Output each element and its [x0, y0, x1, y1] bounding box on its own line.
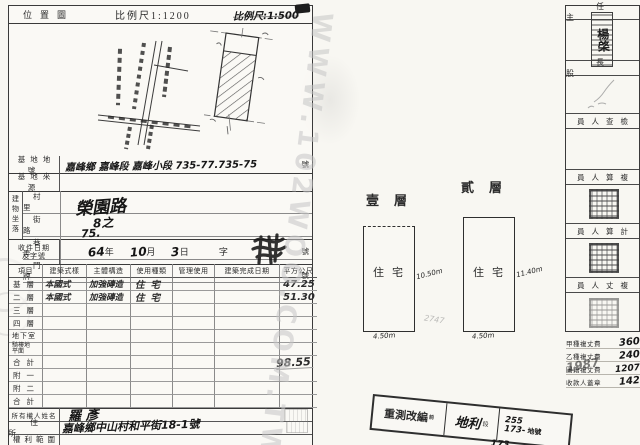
street-label: 街路 [23, 214, 61, 236]
cell [173, 356, 215, 369]
row-label: 騎樓地平面 [9, 343, 43, 356]
cell [215, 304, 280, 317]
cell [87, 356, 131, 369]
floors-table: 項目 建築式樣 主體構造 使用種類 管理使用 建築完成日期 平方公尺 基層 本國… [9, 264, 312, 409]
cell [215, 369, 280, 382]
resurvey-section-unit: 段 [482, 418, 489, 428]
cell [131, 343, 173, 356]
cell [173, 317, 215, 330]
fee-value: 240 [619, 349, 640, 362]
parcel-number-unit: 地號 [527, 427, 542, 436]
intake-year: 64 [88, 244, 106, 259]
resurvey-number-below: 173 [490, 439, 510, 445]
seal-signature: 楊棨 [594, 28, 612, 53]
cell [280, 395, 317, 408]
col-item: 項目 [9, 264, 43, 278]
cell [43, 330, 87, 343]
intake-label-line2: 及字號 [22, 252, 46, 260]
faint-stamp [286, 421, 308, 433]
cell [131, 317, 173, 330]
fee-value: 1207 [615, 363, 640, 375]
fee-value: 360 [619, 336, 640, 349]
location-map-area [9, 23, 312, 156]
cell-area: 51.30 [280, 291, 317, 304]
cell-use: 住宅 [131, 291, 173, 304]
cell-style: 本國式 [43, 291, 87, 304]
cell [131, 395, 173, 408]
cell [280, 317, 317, 330]
cell [87, 382, 131, 395]
printed-scale: 比例尺1:1200 [115, 7, 233, 22]
cell [215, 317, 280, 330]
owner-address-row: 住所 嘉峰鄉中山村和平街18-1號 [9, 421, 312, 435]
cell [43, 382, 87, 395]
village-label: 村里 [23, 191, 61, 213]
cell [173, 330, 215, 343]
col-use: 使用種類 [131, 264, 173, 278]
cell [215, 343, 280, 356]
intake-hao: 號 [302, 246, 310, 257]
floor2-height-dim: 11.40m [515, 265, 543, 279]
cadastral-sketch [94, 31, 206, 151]
cell [215, 356, 280, 369]
door-number-value: 75. [81, 226, 101, 240]
survey-form: 位置圖 比例尺1:1200 比例尺:1:500 [8, 5, 313, 445]
parcel-number-value: 嘉峰鄉 嘉峰段 嘉峰小段 735-77.735-75 [60, 155, 257, 173]
cell-style: 本國式 [43, 278, 87, 291]
row-label: 基層 [9, 278, 43, 291]
parcel-unit: 號 [302, 159, 310, 170]
row-label: 地下室 [9, 330, 43, 343]
resurveyor-stamp [589, 243, 619, 273]
cell [87, 343, 131, 356]
cell [43, 369, 87, 382]
cell [131, 382, 173, 395]
fee-label: 收款人蓋章 [566, 377, 619, 387]
fees-block: 甲種複丈費 360 乙種複丈費 240 圖籍複丈費 1207 收款人蓋章 142… [566, 336, 640, 388]
recheck-calc-label: 員人算複 [566, 169, 639, 185]
resurvey-stamp-text: 重測改編 [383, 405, 428, 425]
cell [43, 343, 87, 356]
floor2-use: 住宅 [463, 264, 513, 280]
resurvey-stamp: 重測改編 前 地利 段 255 173-地號 173 [369, 394, 573, 445]
cell [131, 330, 173, 343]
cell [280, 369, 317, 382]
cell [173, 304, 215, 317]
floor1-width-dim: 4.50m [373, 331, 396, 341]
cell [173, 343, 215, 356]
building-location-label: 建物坐落 [9, 191, 23, 239]
calculator-label: 員人算計 [566, 223, 639, 239]
row-label: 附一 [9, 369, 43, 382]
inspector-label: 員人查檢 [566, 113, 639, 129]
fee-value: 142 [619, 375, 640, 388]
ink-mark [295, 3, 311, 14]
cell [131, 369, 173, 382]
intake-day: 3 [171, 244, 180, 259]
row-label: 四層 [9, 317, 43, 330]
site-source-row: 基地來源 [9, 173, 312, 192]
cell [173, 291, 215, 304]
cell [87, 304, 131, 317]
row-label: 二層 [9, 291, 43, 304]
fee-line: 甲種複丈費 360 [566, 336, 640, 349]
receipt-stamp-blob [250, 232, 288, 268]
fee-label: 甲種複丈費 [566, 338, 619, 348]
intake-month-unit: 月 [146, 245, 155, 258]
cell [280, 304, 317, 317]
intake-month: 10 [129, 244, 147, 259]
rights-scope-label: 權利範圍 [9, 434, 59, 445]
pencil-squiggle [574, 78, 632, 112]
floor1-height-dim: 10.50m [415, 267, 443, 281]
cell [215, 291, 280, 304]
parcel-sketch [204, 28, 284, 140]
col-manage: 管理使用 [173, 264, 215, 278]
calculator-stamp [589, 189, 619, 219]
officials-strip: 任主 長股 員人查檢 員人算複 員人算計 員人丈複 楊棨 [565, 5, 640, 332]
cell-total-area: 98.55 [276, 355, 313, 370]
resurvey-stamp-small: 前 [429, 415, 434, 420]
cell [173, 382, 215, 395]
cell [280, 330, 317, 343]
rights-scope-row: 權利範圍 [9, 434, 312, 445]
cell [280, 343, 317, 356]
cell [173, 369, 215, 382]
cell [87, 369, 131, 382]
intake-day-unit: 日 [180, 245, 189, 258]
cell [43, 356, 87, 369]
floor1-title: 壹層 [366, 190, 422, 209]
cell-structure: 加強磚造 [87, 291, 131, 304]
cell-area: 47.25 [280, 278, 317, 291]
cell [215, 382, 280, 395]
intake-year-unit: 年 [105, 245, 114, 258]
village-row: 村里 [23, 191, 312, 214]
row-label: 附二 [9, 382, 43, 395]
intake-row: 收件日期 及字號 64 年 10 月 3 日 字 號 [9, 239, 312, 265]
cell [215, 395, 280, 408]
cell [43, 317, 87, 330]
source-label: 基地來源 [9, 171, 59, 193]
bottom-stamp [589, 298, 619, 328]
cell [87, 317, 131, 330]
floor1-use: 住宅 [363, 264, 413, 280]
pencil-note: 2747 [423, 313, 445, 325]
cell [173, 395, 215, 408]
cell [131, 356, 173, 369]
row-label: 三層 [9, 304, 43, 317]
col-structure: 主體構造 [87, 264, 131, 278]
fee-line: 收款人蓋章 142 [566, 375, 640, 388]
cell [43, 304, 87, 317]
resurvey-section-value: 地利 [454, 411, 482, 432]
cell [215, 278, 280, 291]
cell [280, 382, 317, 395]
location-map-title: 位置圖 [9, 8, 115, 21]
cell [173, 278, 215, 291]
cell-structure: 加強磚造 [87, 278, 131, 291]
form-header: 位置圖 比例尺1:1200 比例尺:1:500 [9, 6, 312, 24]
intake-zi: 字 [219, 245, 228, 258]
floor2-width-dim: 4.50m [472, 331, 495, 341]
resurveyor-label: 員人丈複 [566, 277, 639, 293]
cell [87, 330, 131, 343]
document-scan: { "watermark": "WWW.102WOO.COM.TW", "hea… [0, 0, 640, 445]
row-label: 合計 [9, 395, 43, 408]
cell [131, 304, 173, 317]
col-style: 建築式樣 [43, 264, 87, 278]
floor2-title: 貳層 [461, 177, 517, 196]
row-label: 合計 [9, 356, 43, 369]
cell [215, 330, 280, 343]
intake-label-line1: 收件日期 [18, 244, 50, 252]
